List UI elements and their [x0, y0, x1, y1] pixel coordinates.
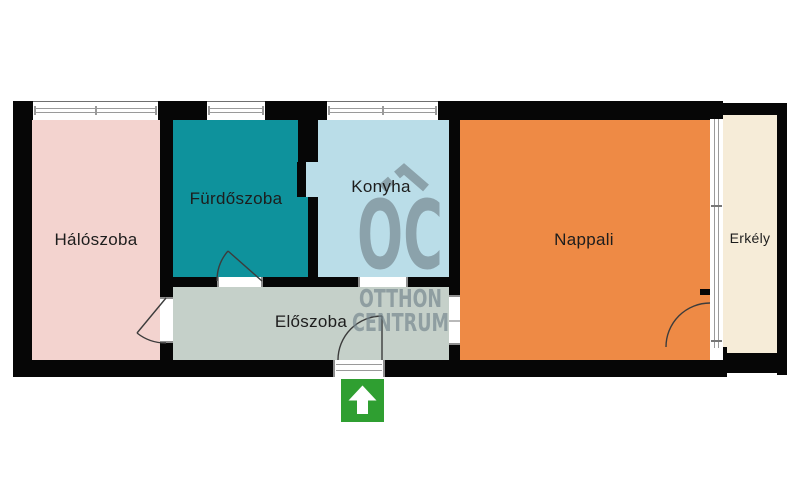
hall-kitchen-passage — [358, 277, 408, 287]
room-bathroom-lower — [173, 197, 308, 277]
label-kitchen: Konyha — [351, 177, 410, 197]
wall-balcony-bottom — [723, 353, 787, 373]
wall-bath-kitchen-c — [308, 197, 318, 277]
wall-balcony-top — [717, 103, 783, 115]
floorplan-canvas: OC OTTHON CENTRUM Hálószoba Fürdőszoba K… — [0, 0, 800, 501]
wall-bath-kitchen-a — [298, 119, 318, 162]
wall-bath-kitchen-b — [297, 162, 306, 197]
label-bedroom: Hálószoba — [54, 230, 137, 250]
wall-top-2 — [158, 101, 207, 120]
window-frame — [209, 108, 263, 113]
wall-top-3 — [265, 101, 327, 120]
bedroom-door-opening — [160, 297, 173, 343]
label-living: Nappali — [554, 230, 614, 250]
wall-bath-bottom-1 — [173, 277, 217, 287]
wall-bedroom-lower — [160, 343, 173, 360]
label-bathroom: Fürdőszoba — [190, 189, 283, 209]
room-kitchen-notch — [306, 162, 318, 197]
window-bedroom — [33, 101, 158, 120]
window-bathroom — [207, 101, 265, 120]
wall-bedroom-upper — [160, 119, 173, 297]
wall-kitchen-bottom — [408, 277, 449, 287]
entrance-door-opening — [333, 360, 385, 377]
wall-left — [13, 101, 32, 377]
wall-top-4 — [438, 101, 723, 120]
window-kitchen — [327, 101, 438, 120]
room-bathroom — [173, 119, 298, 197]
glass-frame — [714, 119, 719, 348]
label-balcony: Erkély — [730, 230, 771, 246]
entrance-arrow-icon — [341, 379, 384, 422]
hall-living-opening — [449, 295, 460, 345]
balcony-glass-wall — [710, 119, 723, 360]
wall-bottom-1 — [13, 360, 333, 377]
room-kitchen — [318, 119, 449, 277]
wall-living-lower — [449, 345, 460, 360]
wall-living-upper — [449, 119, 460, 295]
label-hallway: Előszoba — [275, 312, 347, 332]
wall-bottom-2 — [385, 360, 723, 377]
wall-balcony-right — [777, 103, 787, 375]
wall-bath-bottom-2 — [263, 277, 358, 287]
bathroom-door-opening — [217, 277, 263, 287]
